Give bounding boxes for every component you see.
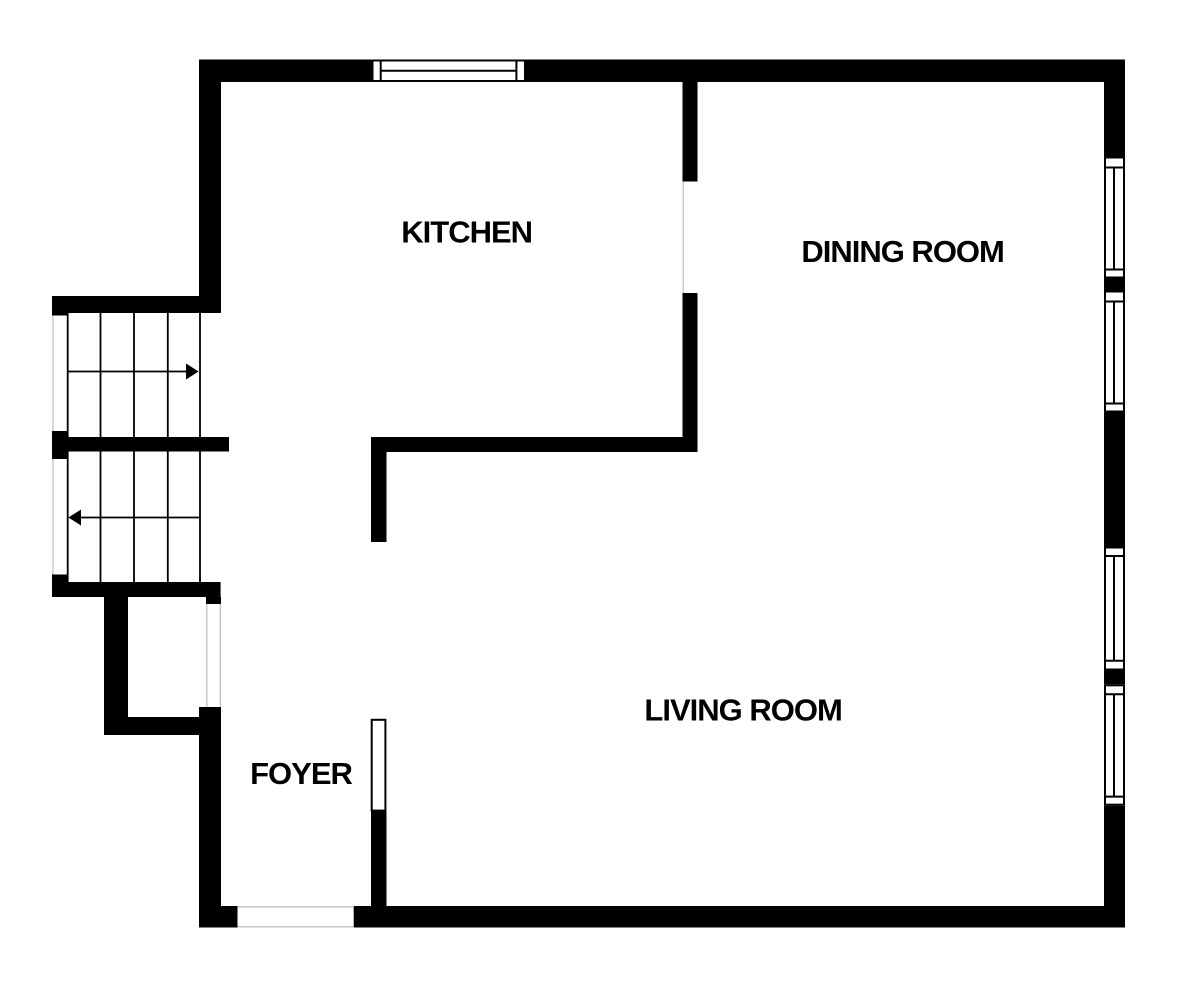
svg-text:FOYER: FOYER — [250, 756, 352, 791]
svg-text:KITCHEN: KITCHEN — [401, 214, 532, 249]
svg-text:DINING ROOM: DINING ROOM — [801, 234, 1004, 269]
svg-text:LIVING ROOM: LIVING ROOM — [644, 692, 841, 727]
